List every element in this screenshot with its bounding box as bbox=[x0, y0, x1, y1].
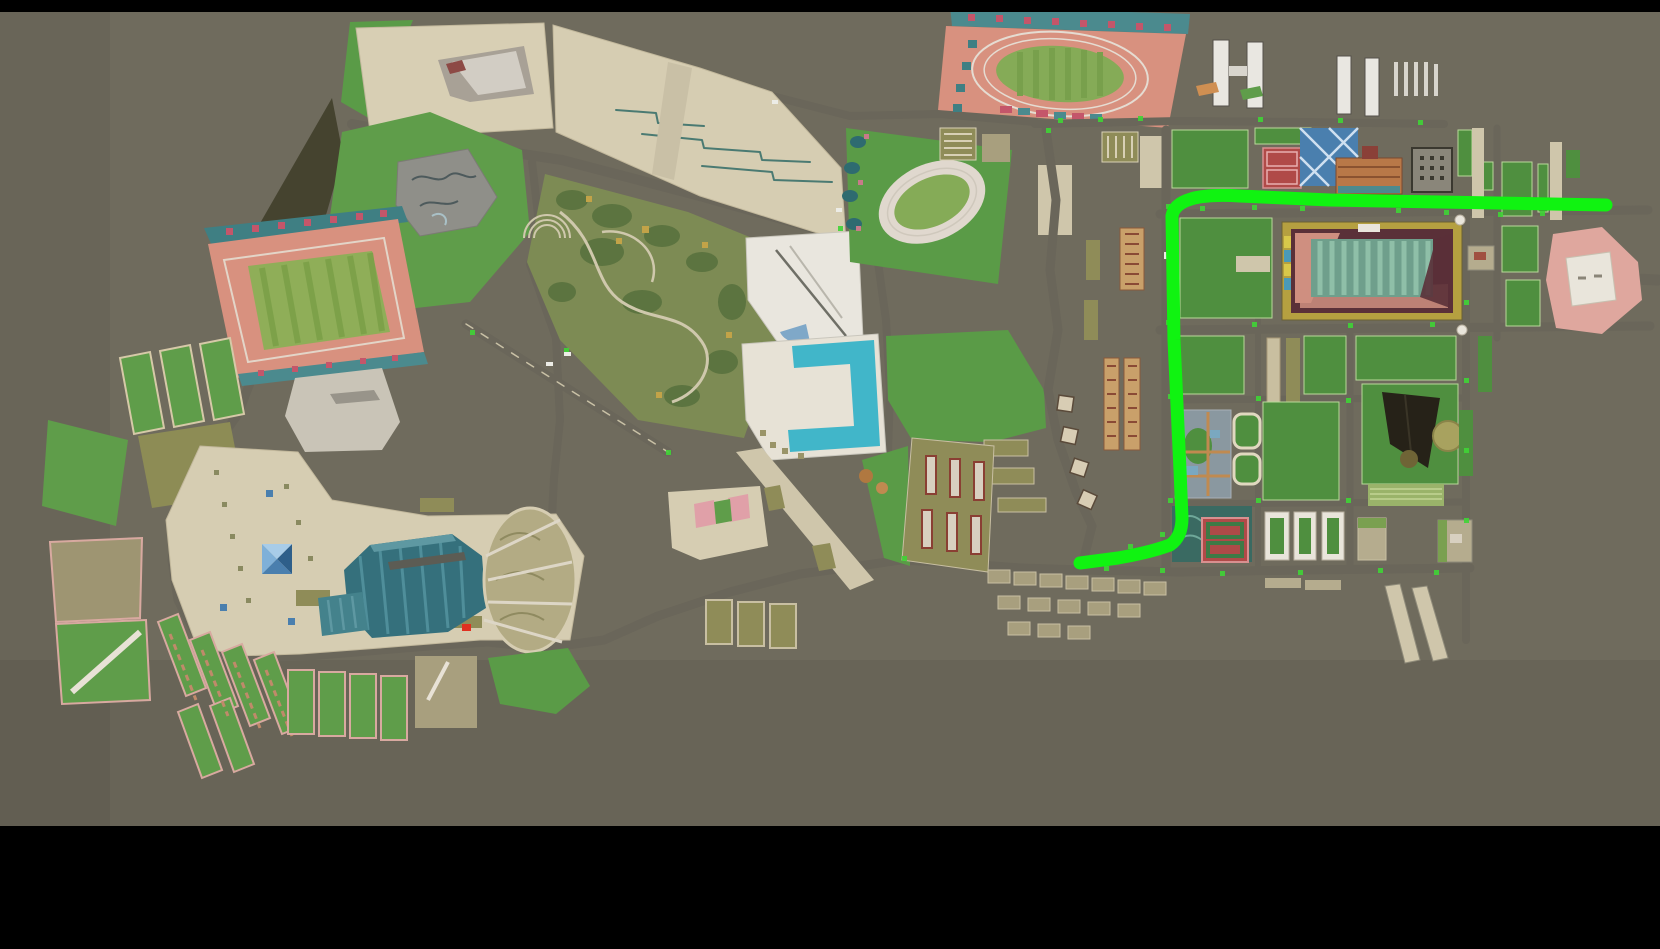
small-track-tree-2 bbox=[844, 162, 860, 174]
roundabout-south bbox=[1457, 325, 1467, 335]
road-north-horizontal bbox=[1035, 121, 1444, 124]
rc-red-courts-top bbox=[1263, 148, 1301, 188]
park-tree-5 bbox=[718, 284, 746, 320]
rc-lawn-mid-east bbox=[1356, 336, 1456, 380]
dorm-building-5 bbox=[947, 513, 957, 551]
park-tree-4 bbox=[686, 252, 718, 272]
south-parking-rect-4 bbox=[381, 676, 407, 740]
rc-heritage-tower bbox=[1362, 146, 1378, 159]
rc-below-road-strip-1 bbox=[1265, 578, 1301, 588]
southwest-tan-field bbox=[50, 538, 142, 622]
arena-red-marker bbox=[462, 624, 471, 631]
rc-lawn-big-south bbox=[1263, 402, 1339, 500]
east-lawn-tree-1 bbox=[859, 469, 873, 483]
south-striped-pads bbox=[706, 600, 796, 648]
ground-vignette-left bbox=[0, 12, 110, 826]
serp-building-1 bbox=[1057, 395, 1074, 412]
south-parking-rect-1 bbox=[288, 670, 314, 734]
north-bldg-bridge bbox=[1229, 66, 1247, 76]
serp-olive-pad-3 bbox=[998, 498, 1046, 512]
rc-east-col-lawn-2 bbox=[1459, 410, 1473, 476]
small-track-tree-1 bbox=[850, 136, 866, 148]
serp-building-2 bbox=[1060, 427, 1078, 445]
tennis-court-2-infield bbox=[1299, 518, 1311, 554]
north-bldg-slab-1 bbox=[1213, 40, 1229, 106]
roundabout-north bbox=[1455, 215, 1465, 225]
north-bldg-slab-3 bbox=[1337, 56, 1351, 114]
dorm-building-6 bbox=[971, 516, 981, 554]
east-gate-building bbox=[1566, 252, 1616, 306]
west-col-olive-2 bbox=[1084, 300, 1098, 340]
serp-olive-pad-2 bbox=[988, 468, 1034, 484]
button-lawn-1 bbox=[1234, 414, 1260, 448]
stadium-side-strip-4 bbox=[1284, 278, 1291, 290]
stadium-side-strip-3 bbox=[1284, 264, 1291, 276]
south-parking-rect-3 bbox=[350, 674, 376, 738]
rc-lawn-mid-west bbox=[1172, 336, 1244, 394]
stadium-side-strip-1 bbox=[1284, 236, 1291, 248]
rc-lawn-top-west bbox=[1172, 130, 1248, 188]
park-tree-9 bbox=[548, 282, 576, 302]
tennis-court-3-infield bbox=[1327, 518, 1339, 554]
rc-lawn-ne-5 bbox=[1566, 150, 1580, 178]
east-lawn-tree-2 bbox=[876, 482, 888, 494]
south-parking-rect-2 bbox=[319, 672, 345, 736]
rc-dotted-building-windows bbox=[1420, 156, 1444, 180]
zebra-pad-east bbox=[982, 134, 1010, 162]
rc-lawn-ne-1 bbox=[1458, 130, 1472, 176]
rc-se-building-tag bbox=[1450, 534, 1462, 543]
rc-below-road-strip-2 bbox=[1305, 580, 1341, 590]
rc-se-building-green bbox=[1438, 520, 1447, 562]
rc-lawn-notch bbox=[1236, 256, 1270, 272]
dorm-building-1 bbox=[926, 456, 936, 494]
plaza-olive-pad-2 bbox=[420, 498, 454, 512]
rc-lawn-mid-center bbox=[1304, 336, 1346, 394]
campus-map-canvas[interactable] bbox=[0, 0, 1660, 949]
rc-east-col-lawn-1 bbox=[1478, 336, 1492, 392]
dorm-building-3 bbox=[974, 462, 984, 500]
small-track-tree-3 bbox=[842, 190, 858, 202]
map-viewport[interactable] bbox=[0, 0, 1660, 949]
court-pink-west bbox=[694, 500, 716, 528]
sculpture-tree-sphere-big bbox=[1433, 421, 1463, 451]
court-green-center bbox=[714, 499, 732, 524]
letterbox-top bbox=[0, 0, 1660, 12]
rc-lawn-gate-1 bbox=[1502, 226, 1538, 272]
west-col-olive-1 bbox=[1086, 240, 1100, 280]
rc-tan-block-south-green bbox=[1358, 518, 1386, 528]
letterbox-bottom bbox=[0, 826, 1660, 949]
stadium-gate-tab bbox=[1358, 224, 1380, 232]
west-col-dorm-1 bbox=[1120, 228, 1144, 290]
dorm-building-4 bbox=[922, 510, 932, 548]
park-tree-2 bbox=[592, 204, 632, 228]
tennis-court-1-infield bbox=[1270, 518, 1284, 554]
rc-lawn-gate-2 bbox=[1506, 280, 1540, 326]
button-lawn-2 bbox=[1234, 454, 1260, 484]
stadium-side-strip-2 bbox=[1284, 250, 1291, 262]
park-tree-6 bbox=[706, 350, 738, 374]
gray-plaza-below-track bbox=[285, 368, 400, 452]
north-bldg-slab-4 bbox=[1365, 58, 1379, 116]
rc-heritage-teal-band bbox=[1338, 186, 1400, 193]
sculpture-tree-sphere-small bbox=[1400, 450, 1418, 468]
rc-photo-building-mark bbox=[1474, 252, 1486, 260]
dorm-building-2 bbox=[950, 459, 960, 497]
park-tree-3 bbox=[644, 225, 680, 247]
park-tree-1 bbox=[556, 190, 588, 210]
